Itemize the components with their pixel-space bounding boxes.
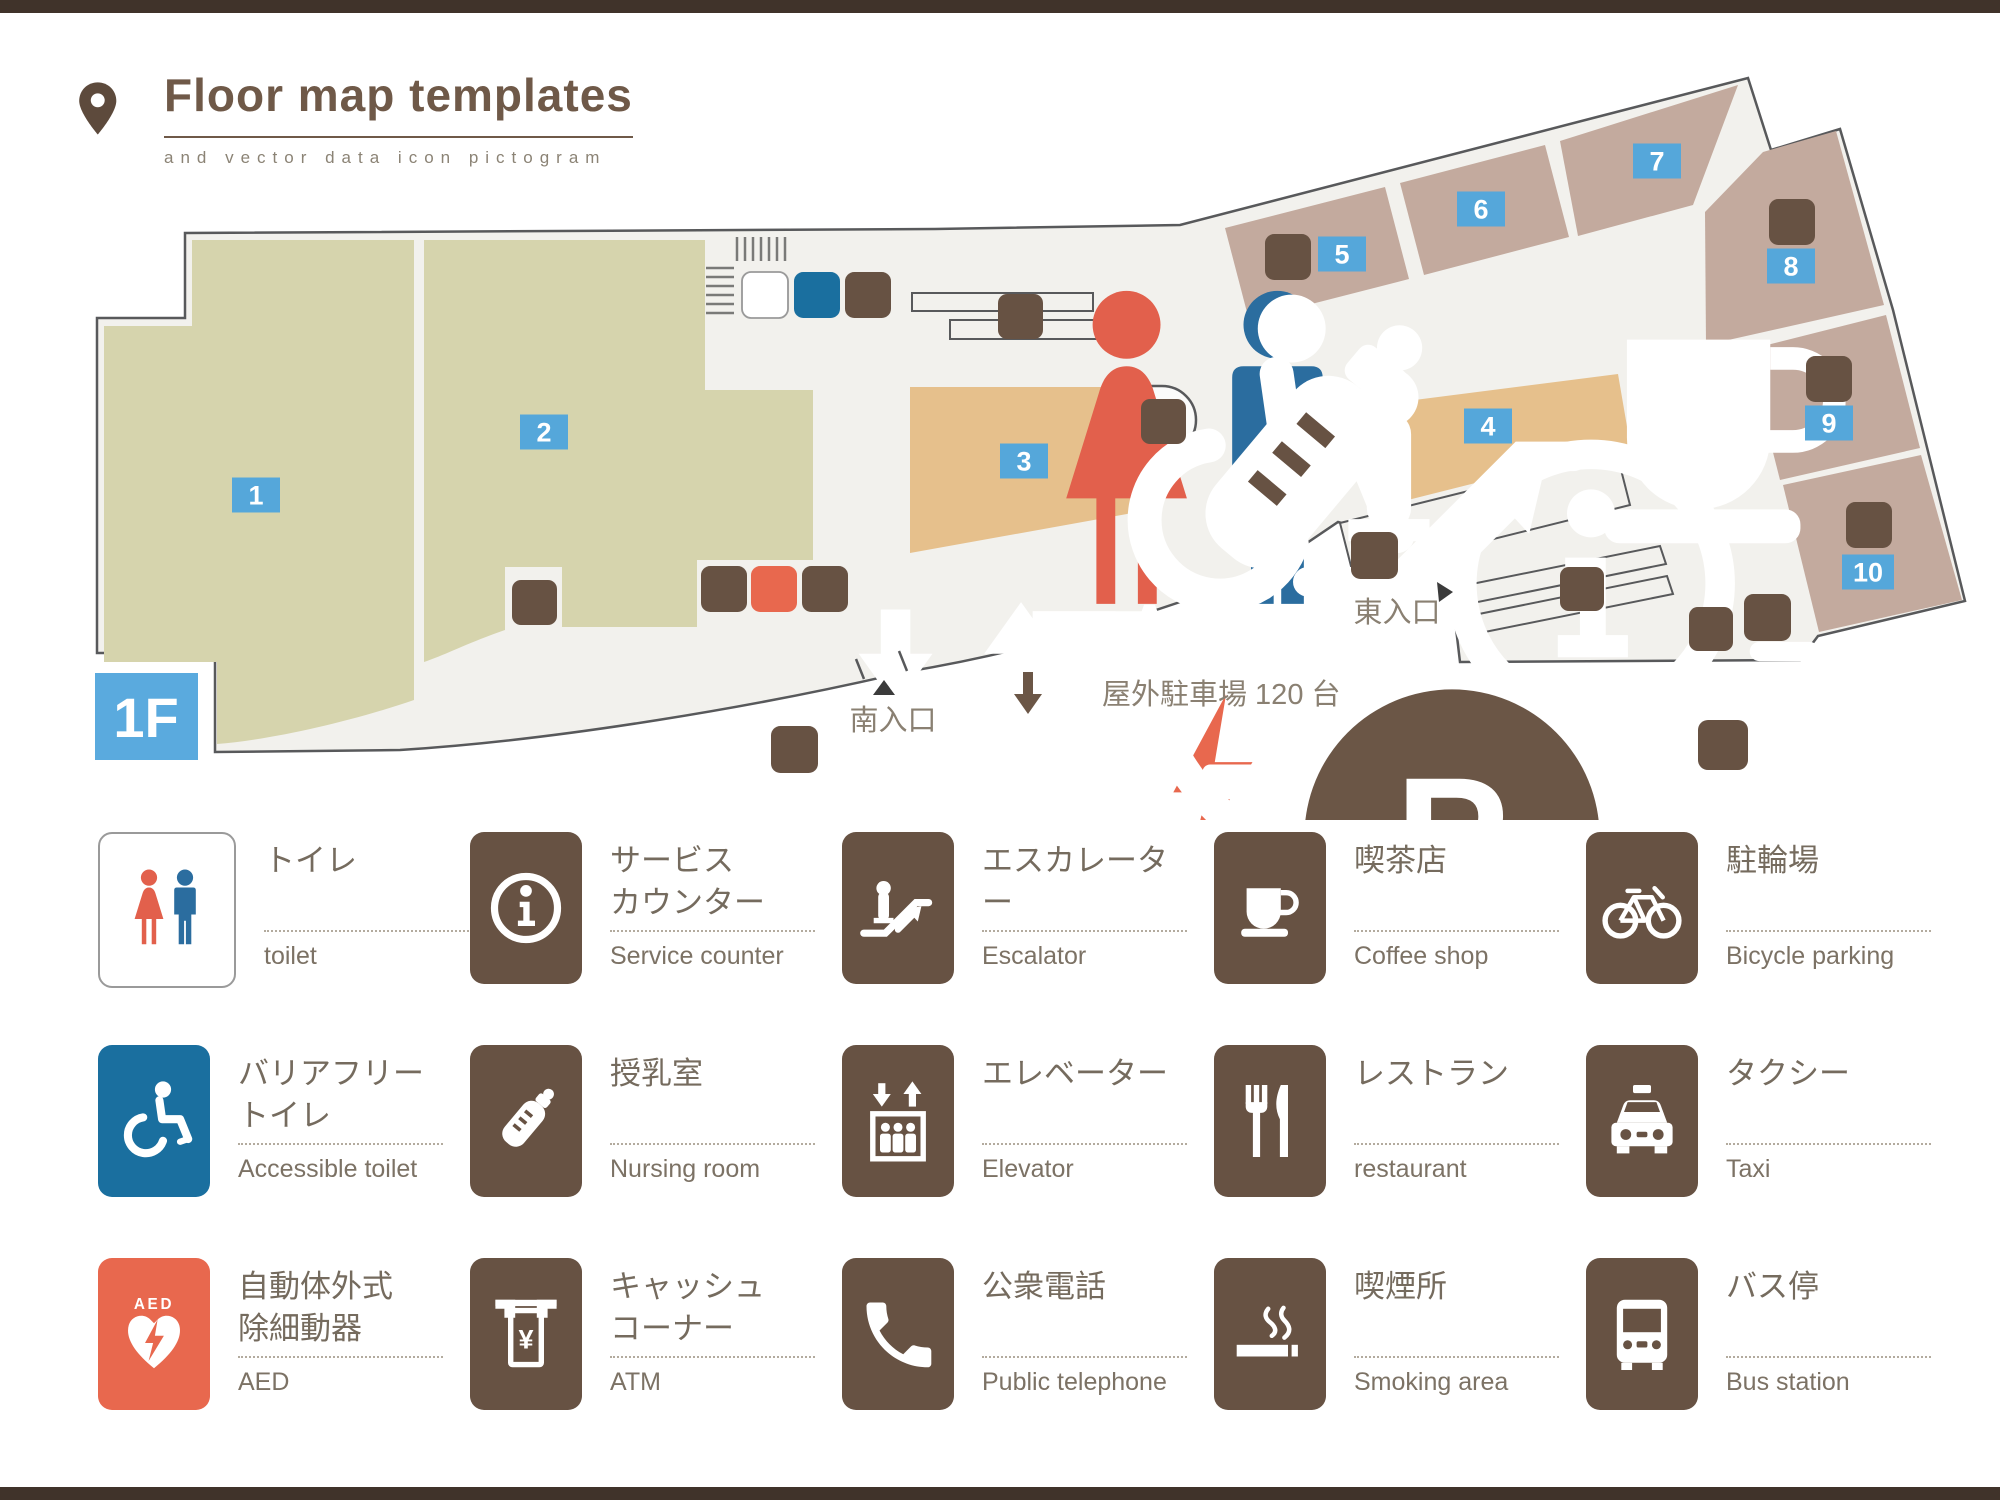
divider: [264, 930, 469, 932]
toilet-icon: [98, 832, 236, 988]
area-badge-7: 7: [1633, 144, 1681, 179]
legend-label-en: Elevator: [982, 1155, 1187, 1184]
svg-text:7: 7: [1649, 147, 1664, 177]
legend-label-jp: 自動体外式除細動器: [238, 1266, 443, 1356]
legend-item-bus-station: バス停Bus station: [1586, 1258, 1958, 1471]
area-badge-10: 10: [1842, 555, 1894, 590]
legend-label-en: Bus station: [1726, 1368, 1931, 1397]
smoking-area-icon: [1214, 1258, 1326, 1410]
legend: トイレtoilet サービスカウンターService counter エスカレー…: [98, 832, 1958, 1471]
legend-item-toilet: トイレtoilet: [98, 832, 470, 1045]
south-entrance-label: 南入口: [849, 704, 936, 737]
svg-text:3: 3: [1016, 447, 1031, 477]
svg-text:4: 4: [1480, 412, 1495, 442]
legend-label-jp: サービスカウンター: [610, 840, 815, 930]
east-entrance-label: 東入口: [1353, 596, 1440, 629]
area-badge-9: 9: [1805, 406, 1853, 441]
legend-label-en: Accessible toilet: [238, 1155, 443, 1184]
area-badge-8: 8: [1767, 249, 1815, 284]
legend-label-en: AED: [238, 1368, 443, 1397]
restaurant-icon: [1214, 1045, 1326, 1197]
legend-label-en: restaurant: [1354, 1155, 1559, 1184]
bus-station-icon: [1586, 1258, 1698, 1410]
floor-badge: 1F: [95, 673, 198, 760]
legend-label-jp: エレベーター: [982, 1053, 1187, 1143]
svg-text:8: 8: [1783, 252, 1798, 282]
divider: [238, 1356, 443, 1358]
divider: [1354, 1356, 1559, 1358]
legend-item-bicycle-parking: 駐輪場Bicycle parking: [1586, 832, 1958, 1045]
legend-label-en: Taxi: [1726, 1155, 1931, 1184]
divider: [610, 1143, 815, 1145]
bottom-border-bar: [0, 1487, 2000, 1500]
divider: [1354, 1143, 1559, 1145]
area-badge-5: 5: [1318, 237, 1366, 272]
legend-item-elevator: エレベーターElevator: [842, 1045, 1214, 1258]
legend-label-jp: 喫煙所: [1354, 1266, 1559, 1356]
divider: [1726, 1356, 1931, 1358]
divider: [982, 1143, 1187, 1145]
legend-label-jp: 駐輪場: [1726, 840, 1931, 930]
service-counter-icon: [470, 832, 582, 984]
svg-text:1F: 1F: [113, 686, 178, 749]
legend-label-en: Smoking area: [1354, 1368, 1559, 1397]
legend-label-en: Nursing room: [610, 1155, 815, 1184]
legend-item-accessible-toilet: バリアフリートイレAccessible toilet: [98, 1045, 470, 1258]
legend-label-en: toilet: [264, 942, 469, 971]
parking-note: 屋外駐車場 120 台: [1102, 678, 1341, 711]
divider: [982, 1356, 1187, 1358]
svg-text:2: 2: [536, 418, 551, 448]
area-badge-2: 2: [520, 415, 568, 450]
area-badge-6: 6: [1457, 192, 1505, 227]
legend-label-jp: 喫茶店: [1354, 840, 1559, 930]
elevator-icon: [842, 1045, 954, 1197]
legend-label-en: Public telephone: [982, 1368, 1187, 1397]
legend-item-public-telephone: 公衆電話Public telephone: [842, 1258, 1214, 1471]
nursing-room-icon: [470, 1045, 582, 1197]
svg-text:10: 10: [1853, 558, 1883, 588]
area-badge-4: 4: [1464, 409, 1512, 444]
area-badge-1: 1: [232, 478, 280, 513]
page: Floor map templates and vector data icon…: [0, 0, 2000, 1500]
svg-text:1: 1: [248, 481, 263, 511]
legend-item-aed: 自動体外式除細動器AED: [98, 1258, 470, 1471]
coffee-shop-icon: [1214, 832, 1326, 984]
legend-label-jp: 授乳室: [610, 1053, 815, 1143]
legend-label-en: Coffee shop: [1354, 942, 1559, 971]
legend-label-jp: 公衆電話: [982, 1266, 1187, 1356]
legend-label-jp: キャッシュコーナー: [610, 1266, 815, 1356]
legend-label-jp: バリアフリートイレ: [238, 1053, 443, 1143]
legend-label-jp: エスカレーター: [982, 840, 1187, 930]
legend-item-taxi: タクシーTaxi: [1586, 1045, 1958, 1258]
legend-label-jp: レストラン: [1354, 1053, 1559, 1143]
divider: [610, 930, 815, 932]
escalator-icon: [842, 832, 954, 984]
legend-label-en: Bicycle parking: [1726, 942, 1931, 971]
public-telephone-icon: [842, 1258, 954, 1410]
legend-item-escalator: エスカレーターEscalator: [842, 832, 1214, 1045]
legend-item-coffee-shop: 喫茶店Coffee shop: [1214, 832, 1586, 1045]
divider: [238, 1143, 443, 1145]
aed-icon: [98, 1258, 210, 1410]
divider: [982, 930, 1187, 932]
atm-icon: [470, 1258, 582, 1410]
legend-label-en: Service counter: [610, 942, 815, 971]
accessible-toilet-icon: [98, 1045, 210, 1197]
divider: [610, 1356, 815, 1358]
legend-item-atm: キャッシュコーナーATM: [470, 1258, 842, 1471]
legend-item-nursing-room: 授乳室Nursing room: [470, 1045, 842, 1258]
floor-map: 屋外駐車場 120 台 南入口 東入口 1 2 3 4 5 6 7 8 9 10…: [0, 0, 2000, 820]
divider: [1726, 930, 1931, 932]
legend-label-en: ATM: [610, 1368, 815, 1397]
legend-label-jp: トイレ: [264, 840, 469, 930]
svg-text:5: 5: [1334, 240, 1349, 270]
svg-text:6: 6: [1473, 195, 1488, 225]
divider: [1354, 930, 1559, 932]
legend-item-restaurant: レストランrestaurant: [1214, 1045, 1586, 1258]
legend-item-service-counter: サービスカウンターService counter: [470, 832, 842, 1045]
divider: [1726, 1143, 1931, 1145]
legend-label-jp: バス停: [1726, 1266, 1931, 1356]
taxi-icon: [1586, 1045, 1698, 1197]
legend-label-jp: タクシー: [1726, 1053, 1931, 1143]
svg-text:9: 9: [1821, 409, 1836, 439]
legend-label-en: Escalator: [982, 942, 1187, 971]
area-badge-3: 3: [1000, 444, 1048, 479]
bicycle-parking-icon: [1586, 832, 1698, 984]
legend-item-smoking-area: 喫煙所Smoking area: [1214, 1258, 1586, 1471]
